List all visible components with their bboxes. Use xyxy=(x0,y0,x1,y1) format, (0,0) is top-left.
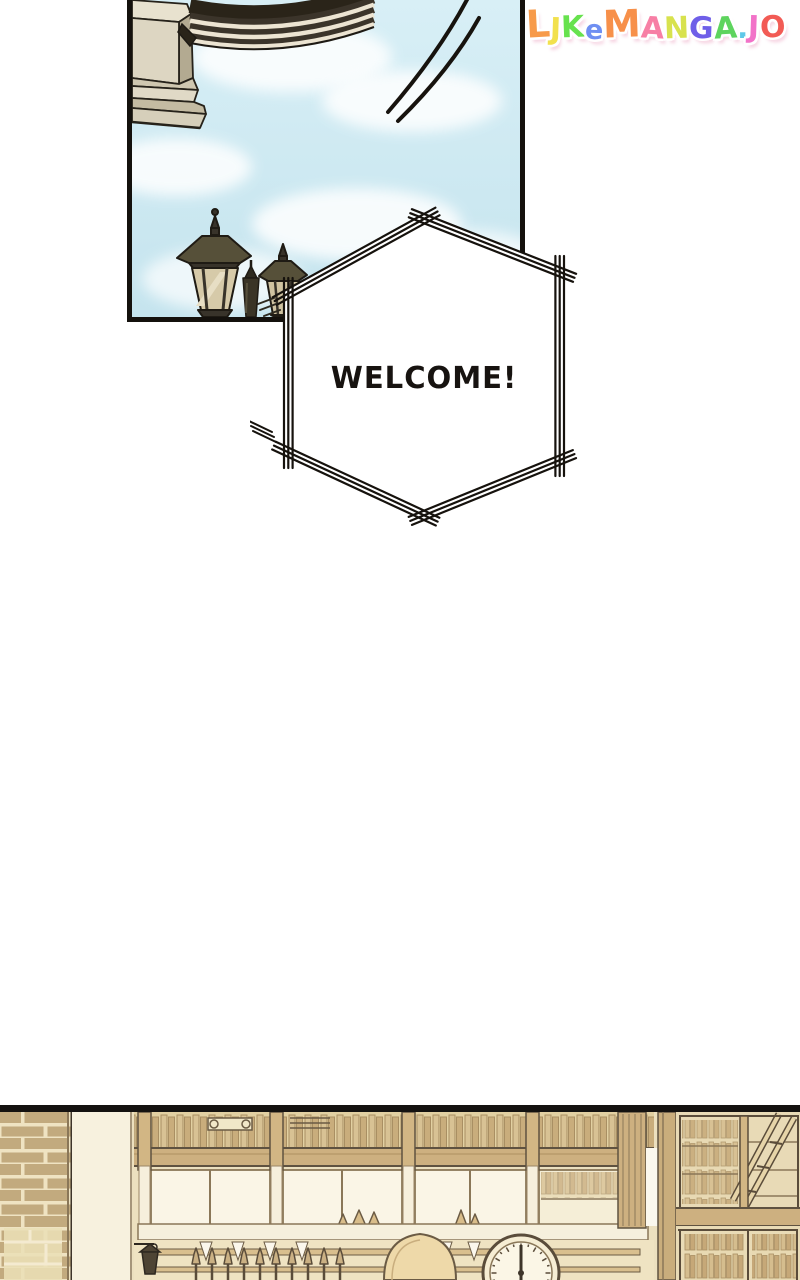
speech-bubble-corner-ticks xyxy=(250,421,276,442)
awning-arch xyxy=(178,0,374,49)
watermark: LJKeMANGA.JO xyxy=(526,4,785,46)
watermark-letter: N xyxy=(663,12,689,46)
comic-page: WELCOME! LJKeMANGA.JO xyxy=(0,0,800,1280)
watermark-letter: O xyxy=(759,11,786,45)
shop-floor xyxy=(134,1234,654,1280)
brick-pillar xyxy=(0,1112,72,1280)
cabinet-right xyxy=(676,1112,800,1280)
motion-lines xyxy=(388,0,479,121)
interior-scene xyxy=(134,1112,800,1280)
cream-beam xyxy=(138,1224,648,1240)
bookshelf-upper xyxy=(134,1112,654,1150)
mezzanine-beam xyxy=(134,1148,654,1166)
watermark-letter: M xyxy=(602,3,641,46)
watermark-letter: A xyxy=(640,11,665,45)
speech-bubble-text: WELCOME! xyxy=(279,361,570,396)
watermark-letter: L xyxy=(525,3,551,46)
watermark-letter: G xyxy=(689,12,715,46)
street-lamp-large xyxy=(177,209,251,317)
watermark-letter: A xyxy=(713,11,738,45)
watermark-letter: e xyxy=(584,16,603,46)
panel-shop-interior xyxy=(0,1105,800,1280)
watermark-letter: J xyxy=(748,11,760,44)
watermark-letter: K xyxy=(561,11,585,45)
wall-strip xyxy=(72,1112,132,1280)
bottom-panel-art xyxy=(0,1112,800,1280)
